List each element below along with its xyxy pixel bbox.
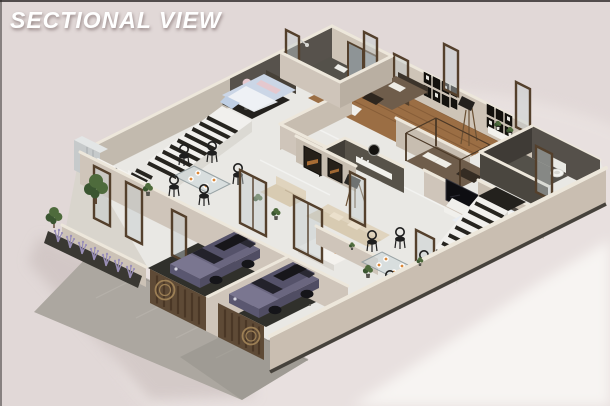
sectional-view-render [0, 0, 610, 406]
left-border [0, 0, 2, 406]
mirror [369, 145, 380, 156]
sectional-view-screenshot: SECTIONAL VIEW [0, 0, 610, 406]
gate-pillar [206, 297, 218, 337]
glass-door [172, 210, 186, 262]
kitchen-window [126, 182, 142, 244]
bathroom-door-frame [536, 146, 552, 200]
shower-head [305, 43, 309, 47]
tall-door-frame [444, 44, 458, 96]
glass-partition [350, 172, 365, 226]
tall-door-frame [516, 82, 530, 134]
page-title: SECTIONAL VIEW [10, 7, 222, 34]
top-border [0, 0, 610, 2]
